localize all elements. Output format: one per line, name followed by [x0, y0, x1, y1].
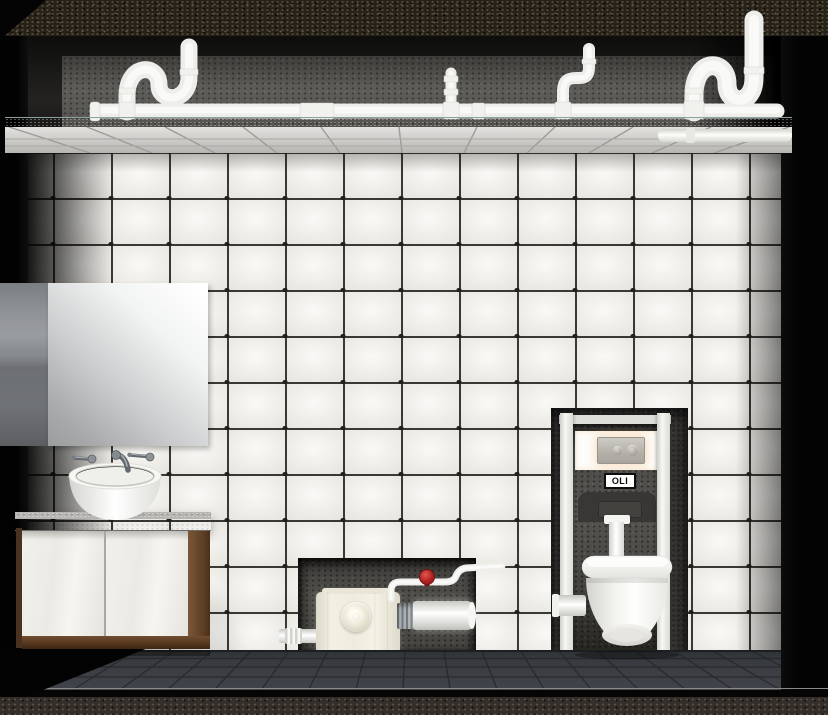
ceiling-surface-pipe: [658, 129, 792, 142]
rubber-coupling: [397, 603, 414, 629]
handle-escutcheon-left: [88, 455, 96, 463]
frame-crossbar: [559, 415, 671, 424]
toilet-floor-shadow: [575, 651, 679, 660]
cabinet-door-right: [106, 531, 188, 636]
red-shutoff-valve: [420, 570, 435, 585]
wall-hung-toilet: [574, 548, 678, 652]
frame-rail-left: [560, 413, 573, 653]
cabinet-wood-bottom: [22, 636, 210, 649]
pump-inlet-pipe: [279, 629, 318, 643]
side-wall-reflection: [0, 283, 48, 446]
floor-concrete-base: [0, 697, 828, 715]
floor-front-edge: [0, 688, 828, 697]
outlet-pipe-ring: [552, 594, 559, 617]
bathroom-render: OLI: [0, 0, 828, 715]
brand-label: OLI: [604, 473, 636, 489]
discharge-pipe: [413, 601, 474, 630]
wall-right-shadow: [736, 152, 781, 652]
flush-button-small: [613, 446, 622, 455]
door-gap: [104, 531, 106, 636]
mirror: [48, 283, 208, 446]
spout-flange: [112, 451, 121, 460]
wall-faucet: [64, 442, 174, 478]
valve-pipe: [375, 558, 510, 603]
flush-button-large: [627, 445, 638, 456]
cabinet-wood-side: [188, 531, 210, 636]
cabinet-door-left: [22, 531, 104, 636]
pump-access-cap: [341, 602, 371, 632]
handle-escutcheon-right: [146, 453, 154, 461]
